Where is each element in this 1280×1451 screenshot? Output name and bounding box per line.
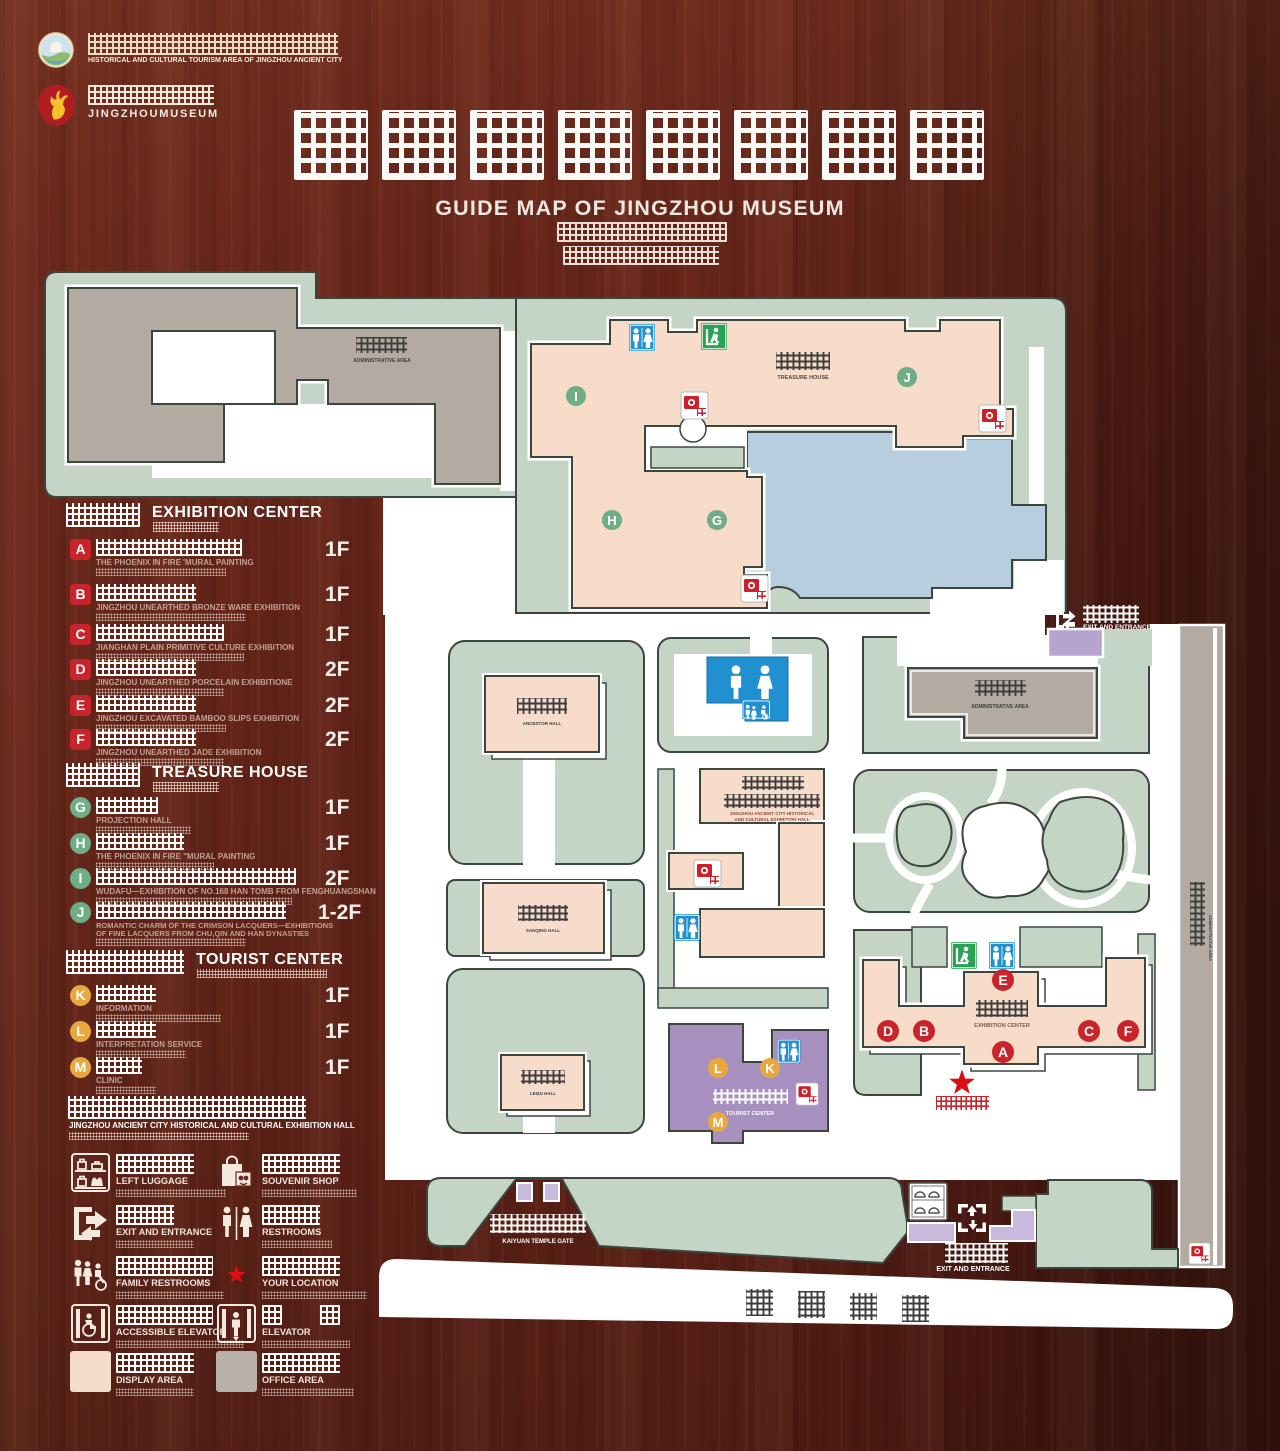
svg-text:F: F: [1124, 1023, 1133, 1039]
svg-text:LEIZU HALL: LEIZU HALL: [530, 1091, 556, 1096]
svg-text:J: J: [903, 370, 910, 385]
svg-text:SANQING HALL: SANQING HALL: [526, 928, 561, 933]
svg-text:AND CULTURAL EXHIBITION HALL: AND CULTURAL EXHIBITION HALL: [734, 817, 810, 822]
svg-text:EXIT AND ENTRANCE: EXIT AND ENTRANCE: [1083, 624, 1152, 631]
svg-text:ANCESTOR HALL: ANCESTOR HALL: [523, 721, 562, 726]
svg-text:ADMINISTRATIVE AREA: ADMINISTRATIVE AREA: [353, 358, 411, 364]
svg-text:KAIYUAN TEMPLE GATE: KAIYUAN TEMPLE GATE: [502, 1239, 573, 1245]
svg-text:I: I: [574, 389, 578, 404]
svg-text:L: L: [714, 1061, 722, 1076]
svg-text:D: D: [883, 1023, 893, 1039]
svg-text:EXHIBITION CENTER: EXHIBITION CENTER: [974, 1023, 1030, 1029]
svg-text:C: C: [1084, 1023, 1094, 1039]
svg-text:ADMINISTRATIVE AREA: ADMINISTRATIVE AREA: [971, 704, 1029, 710]
svg-text:ADMINISTRATIVE AREA: ADMINISTRATIVE AREA: [1208, 915, 1213, 961]
svg-text:M: M: [713, 1115, 724, 1130]
svg-text:EXIT AND ENTRANCE: EXIT AND ENTRANCE: [936, 1266, 1010, 1273]
svg-text:TREASURE HOUSE: TREASURE HOUSE: [777, 375, 829, 381]
svg-text:E: E: [998, 972, 1007, 988]
svg-text:JINGZHOU ANCIENT CITY HISTORIC: JINGZHOU ANCIENT CITY HISTORICAL: [730, 811, 815, 816]
svg-text:H: H: [607, 513, 616, 528]
svg-text:B: B: [919, 1023, 929, 1039]
svg-text:TOURIST CENTER: TOURIST CENTER: [726, 1111, 774, 1117]
svg-text:G: G: [712, 513, 722, 528]
svg-text:K: K: [765, 1061, 775, 1076]
svg-text:A: A: [998, 1044, 1008, 1060]
